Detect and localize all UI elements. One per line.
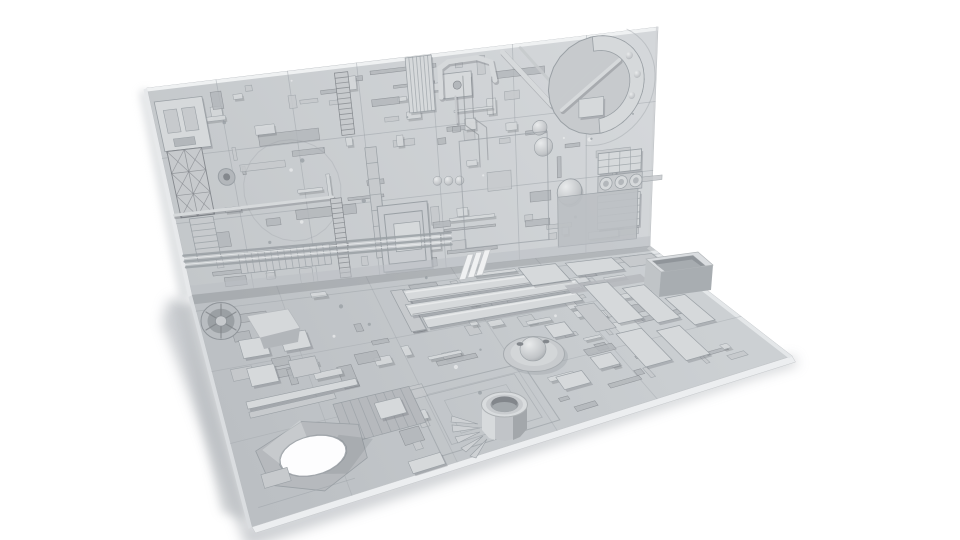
circle-detail: [453, 81, 461, 89]
rivet-dot: [482, 174, 484, 176]
greeble-recess: [438, 138, 446, 145]
disc-hole: [517, 342, 524, 346]
greeble-plate: [288, 95, 297, 109]
rivet-dome: [455, 176, 464, 185]
greeble-block: [396, 135, 404, 147]
render-stage: [0, 0, 960, 540]
rivet-dot: [339, 304, 343, 308]
rivet-dot: [289, 168, 293, 172]
rivet-dot: [300, 220, 304, 224]
greeble-block: [346, 137, 353, 146]
grid-line: [630, 150, 631, 171]
rivet-dot: [479, 349, 481, 351]
greeble-plate: [499, 138, 510, 144]
greeble-diorama-render: [0, 0, 960, 540]
rivet-dot: [454, 365, 458, 369]
greeble: [558, 188, 638, 247]
greeble-plate: [505, 90, 520, 100]
greeble-plate: [487, 170, 512, 191]
render-canvas: [0, 0, 960, 540]
rivet-dot: [333, 335, 336, 338]
rivet-dome: [433, 176, 442, 185]
greeble-block: [467, 160, 478, 167]
rivet-dot: [300, 158, 304, 162]
rivet-dot: [268, 241, 271, 244]
greeble-block: [506, 122, 517, 131]
rivet-dot: [223, 121, 227, 125]
rivet-dot: [590, 138, 592, 140]
fan-hub: [215, 316, 226, 326]
greeble-recess: [452, 126, 460, 133]
greeble-block: [233, 94, 243, 100]
greeble-plate: [451, 240, 467, 251]
greeble-recess: [266, 218, 281, 227]
greeble-plate: [361, 256, 368, 266]
greeble-block: [457, 207, 468, 216]
greeble-plate: [245, 85, 253, 91]
greeble: [579, 97, 604, 118]
rivet-dot: [406, 116, 408, 118]
rivet-dot: [323, 147, 325, 149]
rivet-dot: [362, 199, 366, 203]
rivet-dome: [444, 176, 453, 185]
rivet-dot: [632, 113, 634, 115]
greeble-plate: [549, 233, 557, 240]
rivet-dot: [554, 314, 557, 317]
rivet-dot: [563, 137, 565, 139]
dome-disc-dome: [520, 337, 546, 361]
pit-hole-floor: [493, 402, 517, 412]
disc-hole: [543, 340, 550, 344]
greeble-block: [255, 124, 276, 136]
greeble-recess: [557, 157, 561, 178]
rivet-dot: [368, 323, 371, 326]
rivet-dot: [291, 80, 293, 82]
